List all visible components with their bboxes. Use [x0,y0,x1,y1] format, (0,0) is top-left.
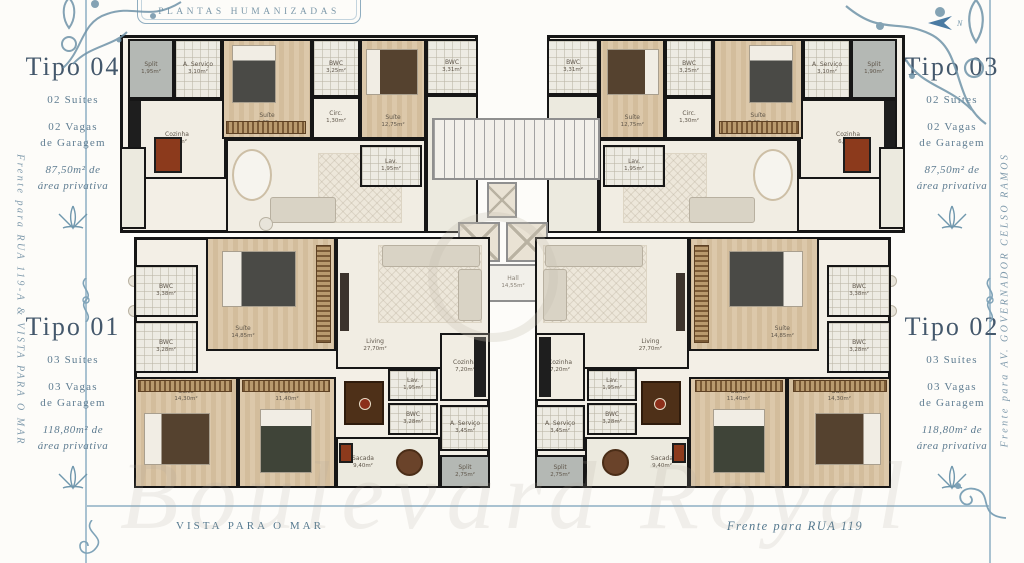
dining-table [641,381,681,425]
dining-table [753,149,793,201]
dining-table [232,149,272,201]
grill [154,137,182,173]
wardrobe [793,380,887,392]
room-area-servico: A. Serviço3,10m² [174,39,222,99]
sofa [270,197,336,223]
room-area-servico: A. Serviço3,45m² [535,405,585,451]
kitchen-counter [539,337,551,397]
room-bwc: BWC3,38m² [827,265,891,317]
wardrobe [694,245,709,343]
room-bwc: BWC3,31m² [426,39,478,95]
tipo-03-vagas: 02 Vagas de Garagem [877,120,1024,152]
bottom-left-swirl-ornament [72,520,112,560]
room-lavabo: Lav.1,95m² [587,369,637,401]
room-lavabo: Lav.1,95m² [603,145,665,187]
room-circulacao: Circ.1,30m² [665,97,713,139]
bed [222,251,296,307]
room-lavabo: Lav.1,95m² [388,369,438,401]
bed [232,45,276,103]
bottom-left-caption: VISTA PARA O MAR [150,520,350,532]
grill [843,137,871,173]
tipo-04-title: Tipo 04 [0,52,148,82]
tipo-04-suites: 02 Suítes [0,93,148,109]
bed [260,409,312,473]
wardrobe [719,121,799,134]
room-area-servico: A. Serviço3,45m² [440,405,490,451]
room-split: Split2,75m² [535,455,585,488]
bed [366,49,418,95]
lily-ornament [55,204,91,230]
room-bwc: BWC3,25m² [665,39,713,97]
plan-tipo-02: BWC3,38m² BWC3,28m² Suíte14,85m² Living2… [535,237,905,490]
wardrobe [138,380,232,392]
lounge-chair [259,217,273,231]
room-bwc: BWC3,28m² [587,403,637,435]
bed [729,251,803,307]
tipo-03-title: Tipo 03 [877,52,1024,82]
bed [749,45,793,103]
sofa [382,245,480,267]
north-label: N [957,19,962,28]
bottom-border-line [85,505,990,507]
left-edge-caption: Frente para RUA 119-A & VISTA PARA O MAR [15,154,26,446]
lily-ornament [934,464,970,490]
lily-ornament [934,204,970,230]
right-edge-caption: Frente para AV. GOVERNADOR CELSO RAMOS [1000,153,1011,448]
north-arrow-icon [928,16,954,30]
room-split: Split2,75m² [440,455,490,488]
north-arrow: N [928,16,962,30]
sofa [458,269,482,321]
wardrobe [242,380,330,392]
room-lavabo: Lav.1,95m² [360,145,422,187]
tv-panel [340,273,349,331]
floor-plans-page: PLANTAS HUMANIZADAS [0,0,1024,563]
wardrobe [226,121,306,134]
grill [672,443,686,463]
room-bwc: BWC3,38m² [134,265,198,317]
page-title: PLANTAS HUMANIZADAS [158,7,340,17]
wardrobe [316,245,331,343]
bed [713,409,765,473]
header-box: PLANTAS HUMANIZADAS [137,0,361,24]
bed [144,413,210,465]
bed [607,49,659,95]
room-bwc: BWC3,31m² [547,39,599,95]
room-bwc: BWC3,28m² [388,403,438,435]
kitchen-counter [474,337,486,397]
tv-panel [676,273,685,331]
grill [339,443,353,463]
lily-ornament [55,464,91,490]
sofa [543,269,567,321]
sofa [689,197,755,223]
round-table [602,449,629,476]
room-area-servico: A. Serviço3,10m² [803,39,851,99]
bed [815,413,881,465]
sofa [545,245,643,267]
dining-table [344,381,384,425]
round-table [396,449,423,476]
room-bwc: BWC3,25m² [312,39,360,97]
plan-tipo-04: Split1,95m² A. Serviço3,10m² Cozinha6,85… [120,35,480,235]
plan-tipo-01: BWC3,38m² BWC3,28m² Suíte14,85m² Living2… [120,237,490,490]
tipo-03-suites: 02 Suítes [877,93,1024,109]
tipo-04-vagas: 02 Vagas de Garagem [0,120,148,152]
bottom-right-caption: Frente para RUA 119 [690,519,900,534]
wardrobe [695,380,783,392]
elevator [487,182,517,218]
stairwell [432,118,600,180]
room-circulacao: Circ.1,30m² [312,97,360,139]
